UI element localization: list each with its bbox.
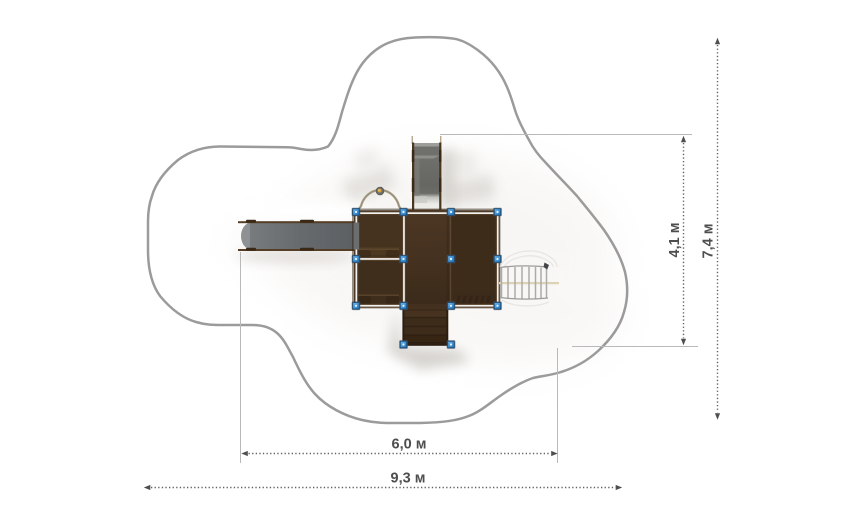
svg-text:4,1 м: 4,1 м xyxy=(667,223,683,258)
svg-text:9,3 м: 9,3 м xyxy=(391,471,426,487)
svg-text:7,4 м: 7,4 м xyxy=(701,224,717,259)
svg-text:6,0 м: 6,0 м xyxy=(392,437,427,453)
